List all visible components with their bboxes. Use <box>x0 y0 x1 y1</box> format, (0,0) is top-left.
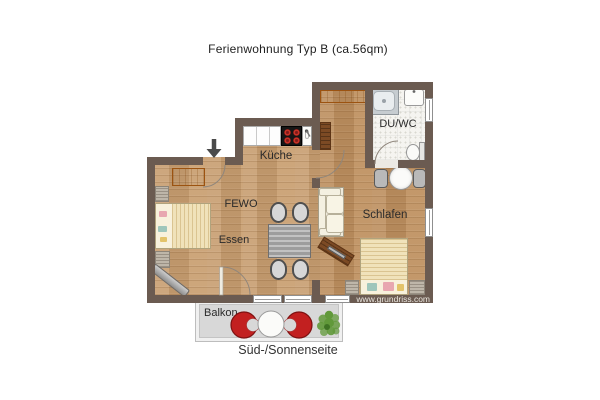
wall-left <box>147 157 155 303</box>
dining-chair <box>292 259 309 280</box>
balcony-window <box>253 295 282 303</box>
window <box>425 208 433 237</box>
orientation-caption: Süd-/Sonnenseite <box>238 343 337 357</box>
bed-pillow <box>156 204 172 248</box>
bath-door-opening <box>375 160 398 168</box>
dining-chair <box>292 202 309 223</box>
double-bed <box>360 238 408 295</box>
room-label-bedroom: Schlafen <box>363 209 408 221</box>
shower <box>369 87 399 115</box>
kitchen-sink <box>302 126 312 146</box>
side-chair <box>374 169 388 188</box>
dresser <box>172 168 205 186</box>
nightstand <box>155 186 169 202</box>
page-title: Ferienwohnung Typ B (ca.56qm) <box>208 42 388 56</box>
floorplan-canvas: Ferienwohnung Typ B (ca.56qm) <box>0 0 600 400</box>
sofa <box>318 187 344 237</box>
stove <box>281 126 302 146</box>
room-label-living: FEWO <box>225 198 258 210</box>
room-label-dining: Essen <box>219 234 250 246</box>
wall-top-upper <box>312 82 433 90</box>
bed-pillow <box>361 280 407 294</box>
wall-hall-bath <box>365 90 373 160</box>
side-table <box>389 166 413 190</box>
shelf <box>320 122 331 150</box>
bed-blanket <box>172 204 210 248</box>
washbasin <box>404 89 424 106</box>
watermark: www.grundriss.com <box>340 294 439 304</box>
room-label-kitchen: Küche <box>260 150 293 162</box>
bed-blanket <box>361 239 407 280</box>
wall-entry-left <box>147 157 203 165</box>
room-label-balcony: Balkon <box>204 307 238 319</box>
kitchen-cabinets <box>243 126 281 146</box>
entrance-arrow-icon <box>207 139 222 158</box>
balcony-window <box>284 295 312 303</box>
nightstand <box>345 280 359 295</box>
nightstand <box>409 280 425 295</box>
wall-divider-top <box>312 82 320 150</box>
window <box>425 98 433 122</box>
dining-chair <box>270 202 287 223</box>
wall-divider-stub <box>312 178 320 188</box>
room-label-bath: DU/WC <box>379 118 416 130</box>
wall-bath-bottom-right <box>398 160 433 168</box>
wall-entry-right <box>225 157 243 165</box>
wall-kitchen-top <box>235 118 312 126</box>
toilet <box>406 144 420 161</box>
wardrobe <box>320 90 370 103</box>
single-bed <box>155 203 211 249</box>
dining-table <box>268 224 311 258</box>
dining-chair <box>270 259 287 280</box>
wall-divider-stub <box>312 280 320 303</box>
wall-bath-bottom-left <box>365 160 375 168</box>
